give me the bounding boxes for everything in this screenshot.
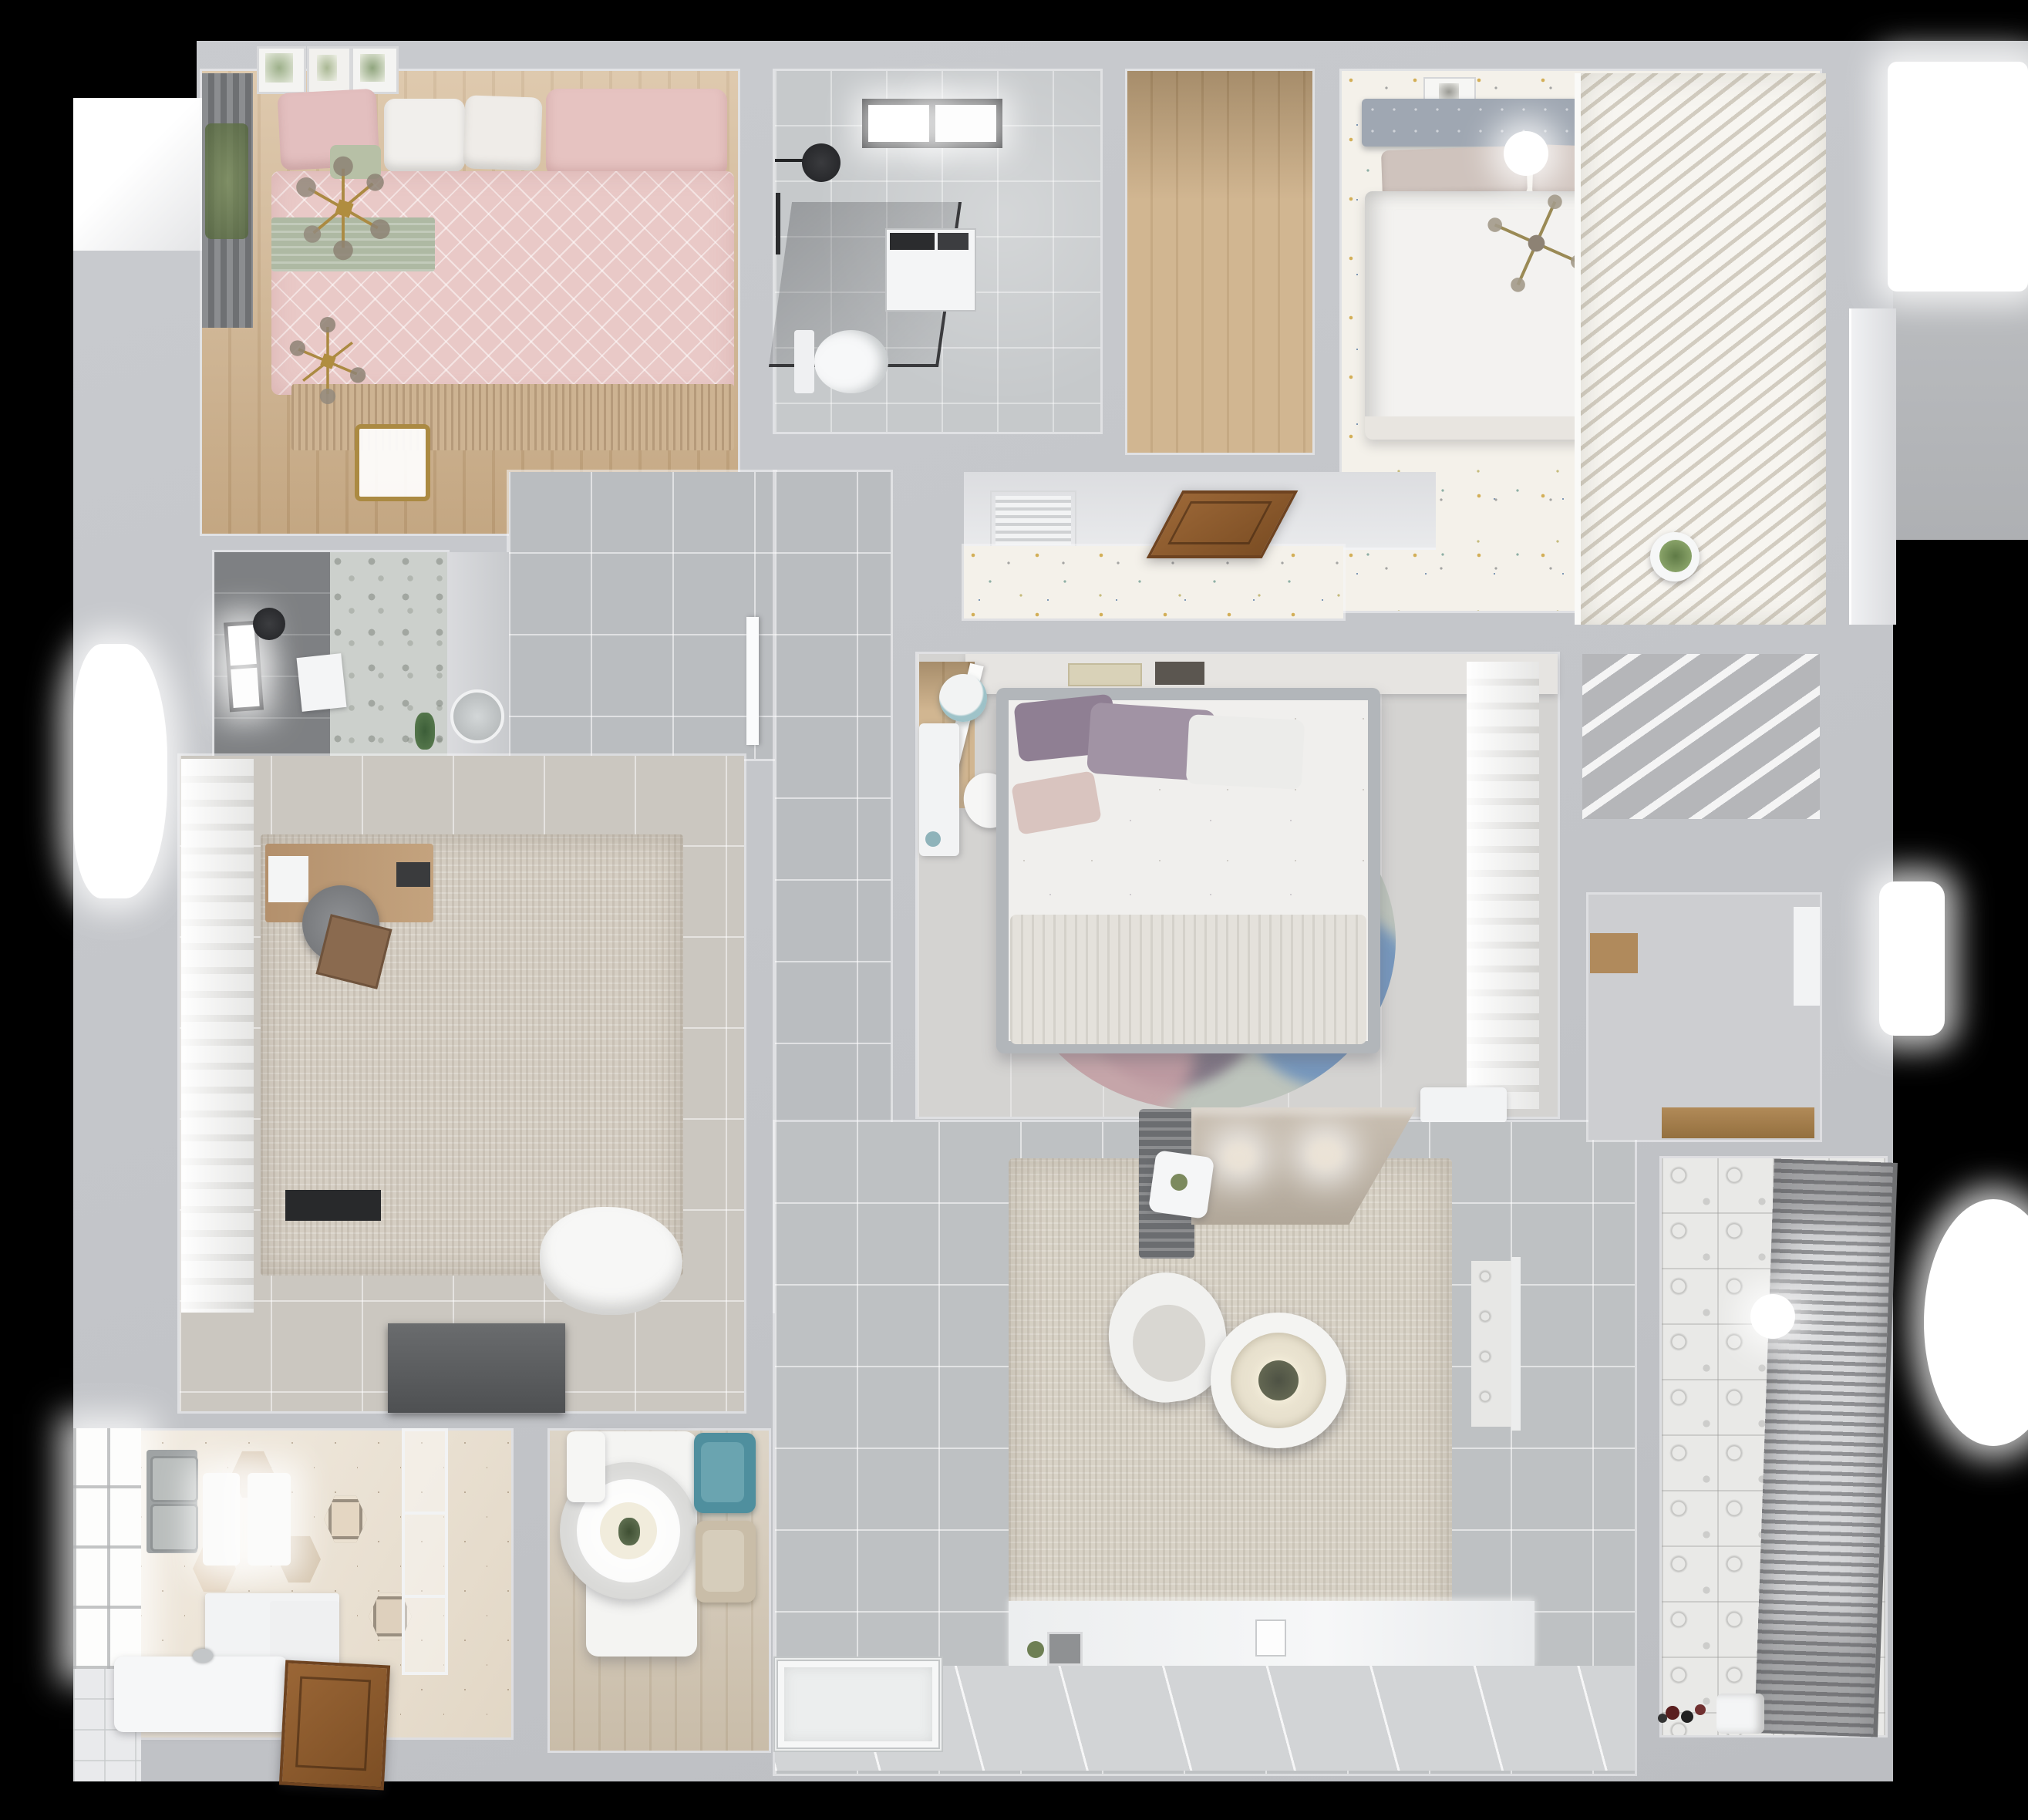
art-frame bbox=[307, 46, 352, 94]
console-gadget bbox=[1255, 1619, 1286, 1657]
window-pane bbox=[231, 667, 259, 708]
media-console bbox=[1009, 1601, 1534, 1667]
shower-valves bbox=[776, 193, 780, 254]
wood-side-shelf bbox=[1590, 933, 1638, 973]
floor-plan-canvas bbox=[0, 0, 2028, 1820]
wood-door bbox=[279, 1660, 390, 1791]
threshold-tiles bbox=[1471, 1261, 1513, 1427]
desk-cup bbox=[925, 831, 941, 847]
light-bleed-right-mid bbox=[1879, 881, 1945, 1036]
bed3-comforter bbox=[1010, 915, 1366, 1044]
cabinet-light-panel bbox=[203, 1473, 240, 1566]
toy-car bbox=[1681, 1710, 1693, 1723]
skylight-window bbox=[862, 99, 1002, 148]
corridor-upper-floor bbox=[509, 472, 775, 759]
light-bleed-left bbox=[73, 644, 167, 898]
ring-coffee-table bbox=[1211, 1313, 1346, 1448]
botanical-print bbox=[360, 54, 385, 82]
bench bbox=[1420, 1087, 1507, 1123]
sink-basin bbox=[150, 1504, 198, 1552]
sofa-cushion-glow bbox=[1307, 1138, 1344, 1171]
right-hallway bbox=[1582, 654, 1820, 819]
louver-wardrobe bbox=[1575, 73, 1826, 625]
gold-chandelier bbox=[281, 147, 405, 270]
toilet-bowl bbox=[814, 330, 888, 393]
drying-rack bbox=[1754, 1158, 1898, 1737]
botanical-print bbox=[317, 55, 337, 81]
armchair-seat bbox=[1128, 1300, 1211, 1387]
sofa-cushion-glow bbox=[1222, 1141, 1256, 1172]
glass-partition bbox=[402, 1428, 448, 1675]
books bbox=[1068, 663, 1142, 686]
washing-machine bbox=[885, 228, 976, 312]
side-table-plant bbox=[1171, 1174, 1187, 1191]
table-tray-plant bbox=[1258, 1360, 1299, 1400]
shower-head bbox=[253, 608, 285, 640]
pillow-white bbox=[463, 95, 542, 170]
cabinet-light-panel bbox=[248, 1473, 291, 1566]
art-frame bbox=[351, 46, 399, 94]
plate-plant bbox=[618, 1518, 640, 1545]
tv-panel bbox=[285, 1190, 381, 1221]
sink-basin bbox=[150, 1456, 198, 1502]
paper-bags bbox=[1716, 1694, 1764, 1734]
light-bleed-right-bulge bbox=[1924, 1199, 2028, 1446]
potted-plant bbox=[1659, 540, 1692, 572]
ceiling-lamp bbox=[1504, 131, 1548, 176]
bench-stool bbox=[355, 424, 430, 501]
sheer-curtains bbox=[1467, 662, 1539, 1109]
art-frame bbox=[257, 46, 306, 94]
teal-chair bbox=[694, 1433, 756, 1513]
study-door-leaf bbox=[746, 617, 759, 745]
window-pane bbox=[227, 625, 256, 666]
white-blanket bbox=[540, 1207, 682, 1315]
beige-chair-seat bbox=[702, 1530, 744, 1592]
toy-part bbox=[1658, 1714, 1667, 1723]
wood-bench-shelf bbox=[1662, 1107, 1814, 1138]
pillow-white bbox=[1186, 714, 1305, 790]
black-notch-top-left bbox=[73, 41, 197, 98]
ornate-mat bbox=[773, 1657, 943, 1752]
toy-car bbox=[1666, 1706, 1679, 1720]
window-greenery bbox=[205, 123, 248, 239]
storage-floor bbox=[1588, 895, 1820, 1140]
door-panel bbox=[1167, 501, 1272, 544]
kitchen-island bbox=[114, 1657, 288, 1732]
towel bbox=[297, 653, 347, 712]
range-hood bbox=[388, 1323, 565, 1413]
wardrobe-curtains bbox=[181, 759, 254, 1313]
ball-lamp bbox=[1750, 1294, 1795, 1339]
kitchen-window-wall bbox=[73, 1428, 141, 1669]
frame-sketch bbox=[1439, 83, 1459, 100]
faucet bbox=[193, 1649, 213, 1663]
skylight-pane bbox=[935, 105, 996, 142]
light-bleed-right-top bbox=[1888, 62, 2028, 292]
teal-chair-seat bbox=[701, 1442, 744, 1502]
threshold-jamb bbox=[1511, 1257, 1521, 1431]
pillow-pink-right bbox=[546, 89, 727, 177]
storage-door bbox=[1794, 907, 1820, 1006]
laptop bbox=[396, 862, 430, 887]
gold-chandelier-foot bbox=[270, 305, 386, 416]
desk-paper bbox=[268, 856, 308, 902]
washer-display bbox=[938, 233, 969, 250]
right-wall-door bbox=[1849, 308, 1896, 625]
beige-chair bbox=[696, 1521, 756, 1603]
blue-stool bbox=[939, 674, 987, 722]
ac-vent bbox=[990, 490, 1076, 551]
white-chair bbox=[567, 1431, 605, 1502]
shower-head bbox=[802, 143, 841, 182]
botanical-print bbox=[265, 53, 293, 83]
console-plant bbox=[1027, 1641, 1044, 1658]
plant bbox=[415, 713, 435, 750]
toy-car bbox=[1695, 1704, 1706, 1715]
closet-floor bbox=[1127, 71, 1312, 453]
books bbox=[1155, 662, 1204, 685]
round-mirror bbox=[450, 689, 504, 743]
double-sink bbox=[147, 1450, 197, 1553]
toilet-tank bbox=[794, 330, 814, 393]
door-panel bbox=[295, 1677, 371, 1771]
washer-control-panel bbox=[890, 233, 935, 250]
console-frames bbox=[1047, 1632, 1083, 1666]
skylight-pane bbox=[868, 105, 929, 142]
